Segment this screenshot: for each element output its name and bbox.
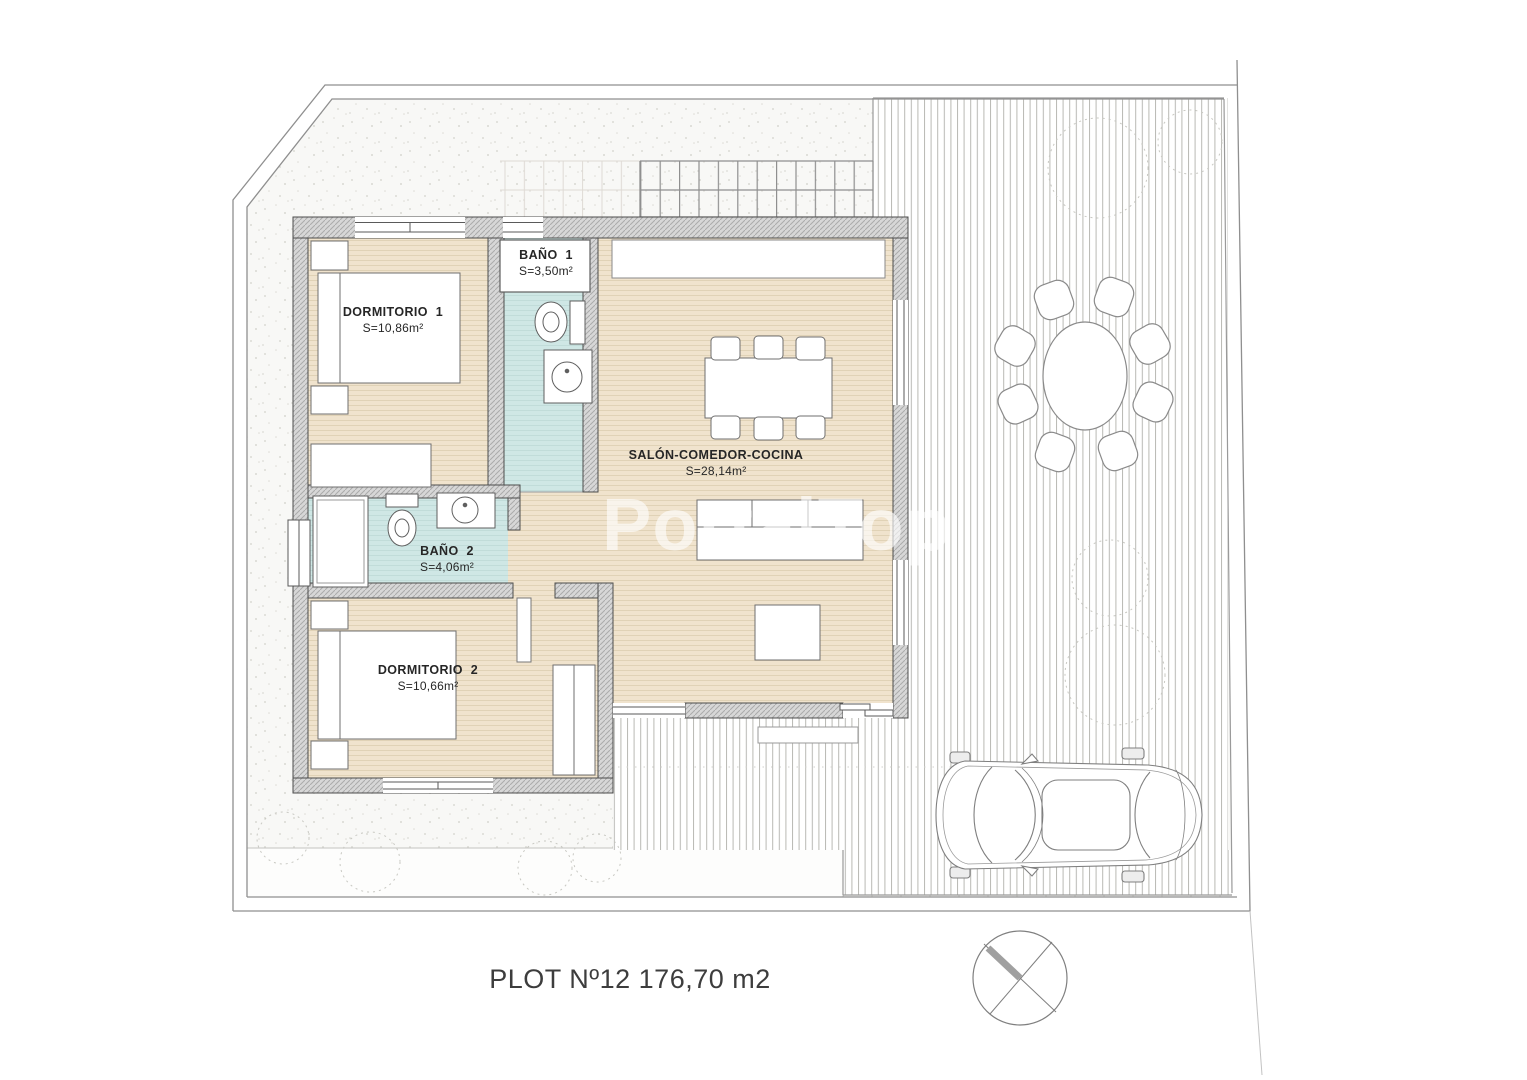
nightstand	[311, 741, 348, 769]
coffee-table	[755, 605, 820, 660]
plot-caption: PLOT Nº12 176,70 m2	[489, 964, 771, 995]
kitchen-counter	[612, 240, 885, 278]
dining-chair	[754, 336, 783, 359]
window-bano-2	[288, 520, 310, 586]
floor-plan-page: PortalTop DORMITORIO 1 S=10,86m² BAÑO 1 …	[0, 0, 1527, 1080]
room-label-dormitorio-2: DORMITORIO 2 S=10,66m²	[378, 663, 478, 694]
pergola-grid-icon	[500, 161, 873, 217]
room-name: BAÑO 2	[420, 544, 474, 559]
sofa	[697, 500, 863, 560]
room-area: S=3,50m²	[519, 264, 573, 279]
room-label-salon: SALÓN-COMEDOR-COCINA S=28,14m²	[629, 448, 804, 479]
room-name: SALÓN-COMEDOR-COCINA	[629, 448, 804, 463]
door-leaf-dormitorio-2	[517, 598, 531, 662]
room-label-bano-1: BAÑO 1 S=3,50m²	[519, 248, 573, 279]
dining-chair	[796, 416, 825, 439]
dining-table	[705, 358, 832, 418]
room-name: BAÑO 1	[519, 248, 573, 263]
room-label-bano-2: BAÑO 2 S=4,06m²	[420, 544, 474, 575]
front-walkway	[247, 848, 843, 897]
room-area: S=28,14m²	[629, 464, 804, 479]
window-dormitorio-2	[383, 778, 493, 793]
room-name: DORMITORIO 2	[378, 663, 478, 678]
sink-icon	[452, 497, 478, 523]
room-area: S=10,86m²	[343, 321, 443, 336]
room-name: DORMITORIO 1	[343, 305, 443, 320]
window-salon-right-lower	[893, 560, 908, 645]
toilet-tank	[386, 494, 418, 507]
dining-chair	[711, 416, 740, 439]
window-salon-right-upper	[893, 300, 908, 405]
dining-chair	[711, 337, 740, 360]
wardrobe	[311, 444, 431, 487]
sink-icon	[552, 362, 582, 392]
toilet-tank	[570, 301, 585, 344]
room-area: S=10,66m²	[378, 679, 478, 694]
window-salon-bottom	[613, 703, 685, 718]
dining-chair	[796, 337, 825, 360]
floor-plan-canvas	[0, 0, 1527, 1080]
outdoor-table	[1043, 322, 1127, 430]
room-area: S=4,06m²	[420, 560, 474, 575]
nightstand	[311, 386, 348, 414]
floor-hall	[508, 492, 598, 598]
window-dormitorio-1	[355, 217, 465, 238]
window-bano-1	[503, 217, 543, 238]
car-top-view-icon	[936, 748, 1202, 882]
north-compass-icon	[973, 931, 1067, 1025]
nightstand	[311, 241, 348, 270]
dining-chair	[754, 417, 783, 440]
room-label-dormitorio-1: DORMITORIO 1 S=10,86m²	[343, 305, 443, 336]
nightstand	[311, 601, 348, 629]
